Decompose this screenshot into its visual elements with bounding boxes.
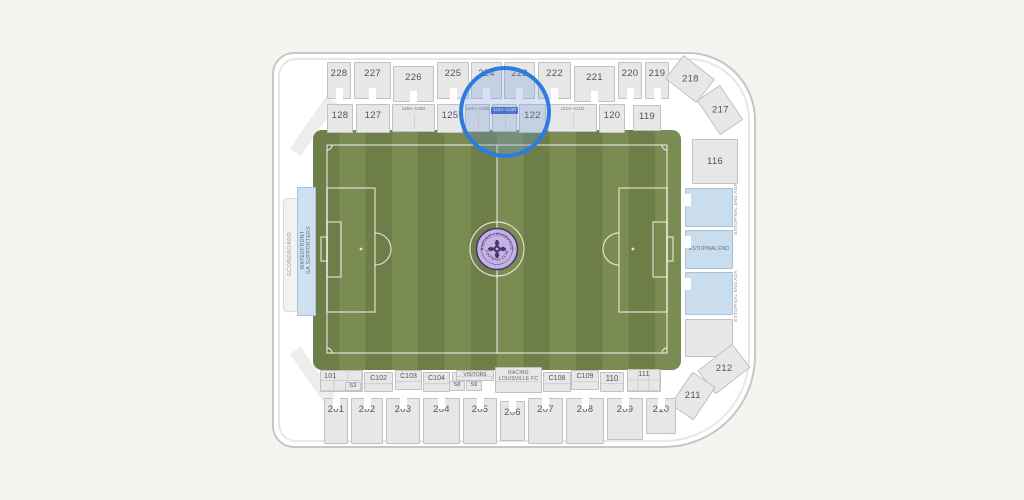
section-label: 207 bbox=[537, 405, 554, 415]
section-label: S8 bbox=[453, 383, 460, 389]
section-label: 212 bbox=[716, 364, 733, 374]
section-label: 211 bbox=[685, 391, 701, 401]
section-c108[interactable]: C108 bbox=[543, 372, 571, 392]
section-203[interactable]: 203 bbox=[386, 398, 420, 444]
section-label: 202 bbox=[359, 405, 376, 415]
section-visitors[interactable]: VISITORS bbox=[456, 370, 494, 381]
waterfront-label-line2: GA SUPPORTERS bbox=[304, 190, 314, 310]
section-label: 128 bbox=[332, 111, 349, 121]
section-201[interactable]: 201 bbox=[324, 398, 348, 444]
section-label: C102 bbox=[370, 375, 387, 382]
section-label: C109 bbox=[577, 373, 594, 380]
section-label: 126A–126D bbox=[402, 107, 426, 112]
section-207[interactable]: 207 bbox=[528, 398, 563, 444]
racing-louisville-fc-label: RACING LOUISVILLE FC bbox=[499, 370, 538, 383]
section-205[interactable]: 205 bbox=[463, 398, 497, 444]
section-label: 119 bbox=[639, 112, 655, 122]
section-block bbox=[685, 188, 733, 227]
section-label: 120 bbox=[604, 111, 621, 121]
section-c109[interactable]: C109 bbox=[571, 370, 599, 390]
section-label: ESTOPINAL END bbox=[689, 247, 729, 252]
section-110[interactable]: 110 bbox=[600, 372, 624, 392]
section-219[interactable]: 219 bbox=[645, 62, 669, 99]
section-209[interactable]: 209 bbox=[607, 398, 643, 440]
section-label: 217 bbox=[712, 105, 729, 115]
section-estopinal-end[interactable]: ESTOPINAL END bbox=[685, 230, 733, 269]
section-128[interactable]: 128 bbox=[327, 104, 353, 133]
section-228[interactable]: 228 bbox=[327, 62, 351, 99]
section-label: C103 bbox=[400, 373, 417, 380]
section-label: 218 bbox=[682, 74, 699, 84]
section-label: 110 bbox=[606, 375, 619, 383]
section-label: 206 bbox=[504, 408, 521, 418]
selection-highlight-circle bbox=[459, 66, 551, 158]
section-label: 221 bbox=[586, 73, 603, 83]
section-111[interactable]: 111 bbox=[627, 369, 661, 392]
section-label: 125 bbox=[442, 111, 459, 121]
section-s3[interactable]: S3 bbox=[345, 382, 361, 391]
section-label: 208 bbox=[577, 405, 594, 415]
section-racing-louisville-fc[interactable]: RACING LOUISVILLE FC bbox=[495, 367, 542, 393]
section-label: 121A–121D bbox=[561, 107, 585, 112]
section-label: 201 bbox=[328, 405, 345, 415]
section-126a-126d[interactable]: 126A–126D bbox=[392, 104, 435, 132]
section-226[interactable]: 226 bbox=[393, 66, 434, 102]
section-label: 227 bbox=[364, 69, 381, 79]
section-label: 205 bbox=[472, 405, 489, 415]
section-label: 209 bbox=[617, 405, 634, 415]
section-121a-121d[interactable]: 121A–121D bbox=[548, 104, 597, 132]
section-220[interactable]: 220 bbox=[618, 62, 642, 99]
section-label: VISITORS bbox=[463, 373, 486, 378]
club-logo: RACING LOUISVILLE FOOTBALL CLUB bbox=[475, 227, 519, 271]
section-210[interactable]: 210 bbox=[646, 398, 676, 434]
section-c104[interactable]: C104 bbox=[423, 372, 450, 392]
section-206[interactable]: 206 bbox=[500, 401, 525, 441]
section-label: 111 bbox=[638, 371, 650, 378]
section-208[interactable]: 208 bbox=[566, 398, 604, 444]
section-label: 210 bbox=[653, 405, 670, 415]
section-s9[interactable]: S9 bbox=[466, 381, 482, 391]
section-119[interactable]: 119 bbox=[633, 105, 661, 131]
section-c102[interactable]: C102 bbox=[364, 372, 393, 392]
section-label: S9 bbox=[470, 383, 477, 389]
scoreboard-label: SCOREBOARD bbox=[285, 199, 295, 309]
section-label: 101 bbox=[324, 373, 337, 380]
section-label: 116 bbox=[707, 157, 723, 167]
section-block bbox=[685, 272, 733, 315]
section-label: 225 bbox=[445, 69, 462, 79]
section-120[interactable]: 120 bbox=[599, 104, 625, 133]
section-label: 222 bbox=[546, 69, 563, 79]
section-label: C108 bbox=[549, 375, 566, 382]
section-221[interactable]: 221 bbox=[574, 66, 615, 102]
section-label: 220 bbox=[622, 69, 639, 79]
section-227[interactable]: 227 bbox=[354, 62, 391, 99]
section-204[interactable]: 204 bbox=[423, 398, 460, 444]
section-s8[interactable]: S8 bbox=[449, 381, 465, 391]
section-c103[interactable]: C103 bbox=[395, 370, 422, 390]
section-127[interactable]: 127 bbox=[356, 104, 390, 133]
section-label: 127 bbox=[365, 111, 382, 121]
stadium-seat-map: SCOREBOARD WATERFRONT GA SUPPORTERS 2282… bbox=[0, 0, 1024, 500]
section-label: S3 bbox=[349, 384, 356, 390]
section-label: 219 bbox=[649, 69, 666, 79]
section-label: C104 bbox=[428, 375, 445, 382]
section-label: 228 bbox=[331, 69, 348, 79]
estopinal-end-ada-label-bottom: ESTOPINAL END ADA bbox=[731, 256, 741, 336]
section-label: 203 bbox=[395, 405, 412, 415]
section-202[interactable]: 202 bbox=[351, 398, 383, 444]
section-label: 204 bbox=[433, 405, 450, 415]
estopinal-end-ada-label-top: ESTOPINAL END ADA bbox=[731, 169, 741, 249]
section-label: 226 bbox=[405, 73, 422, 83]
